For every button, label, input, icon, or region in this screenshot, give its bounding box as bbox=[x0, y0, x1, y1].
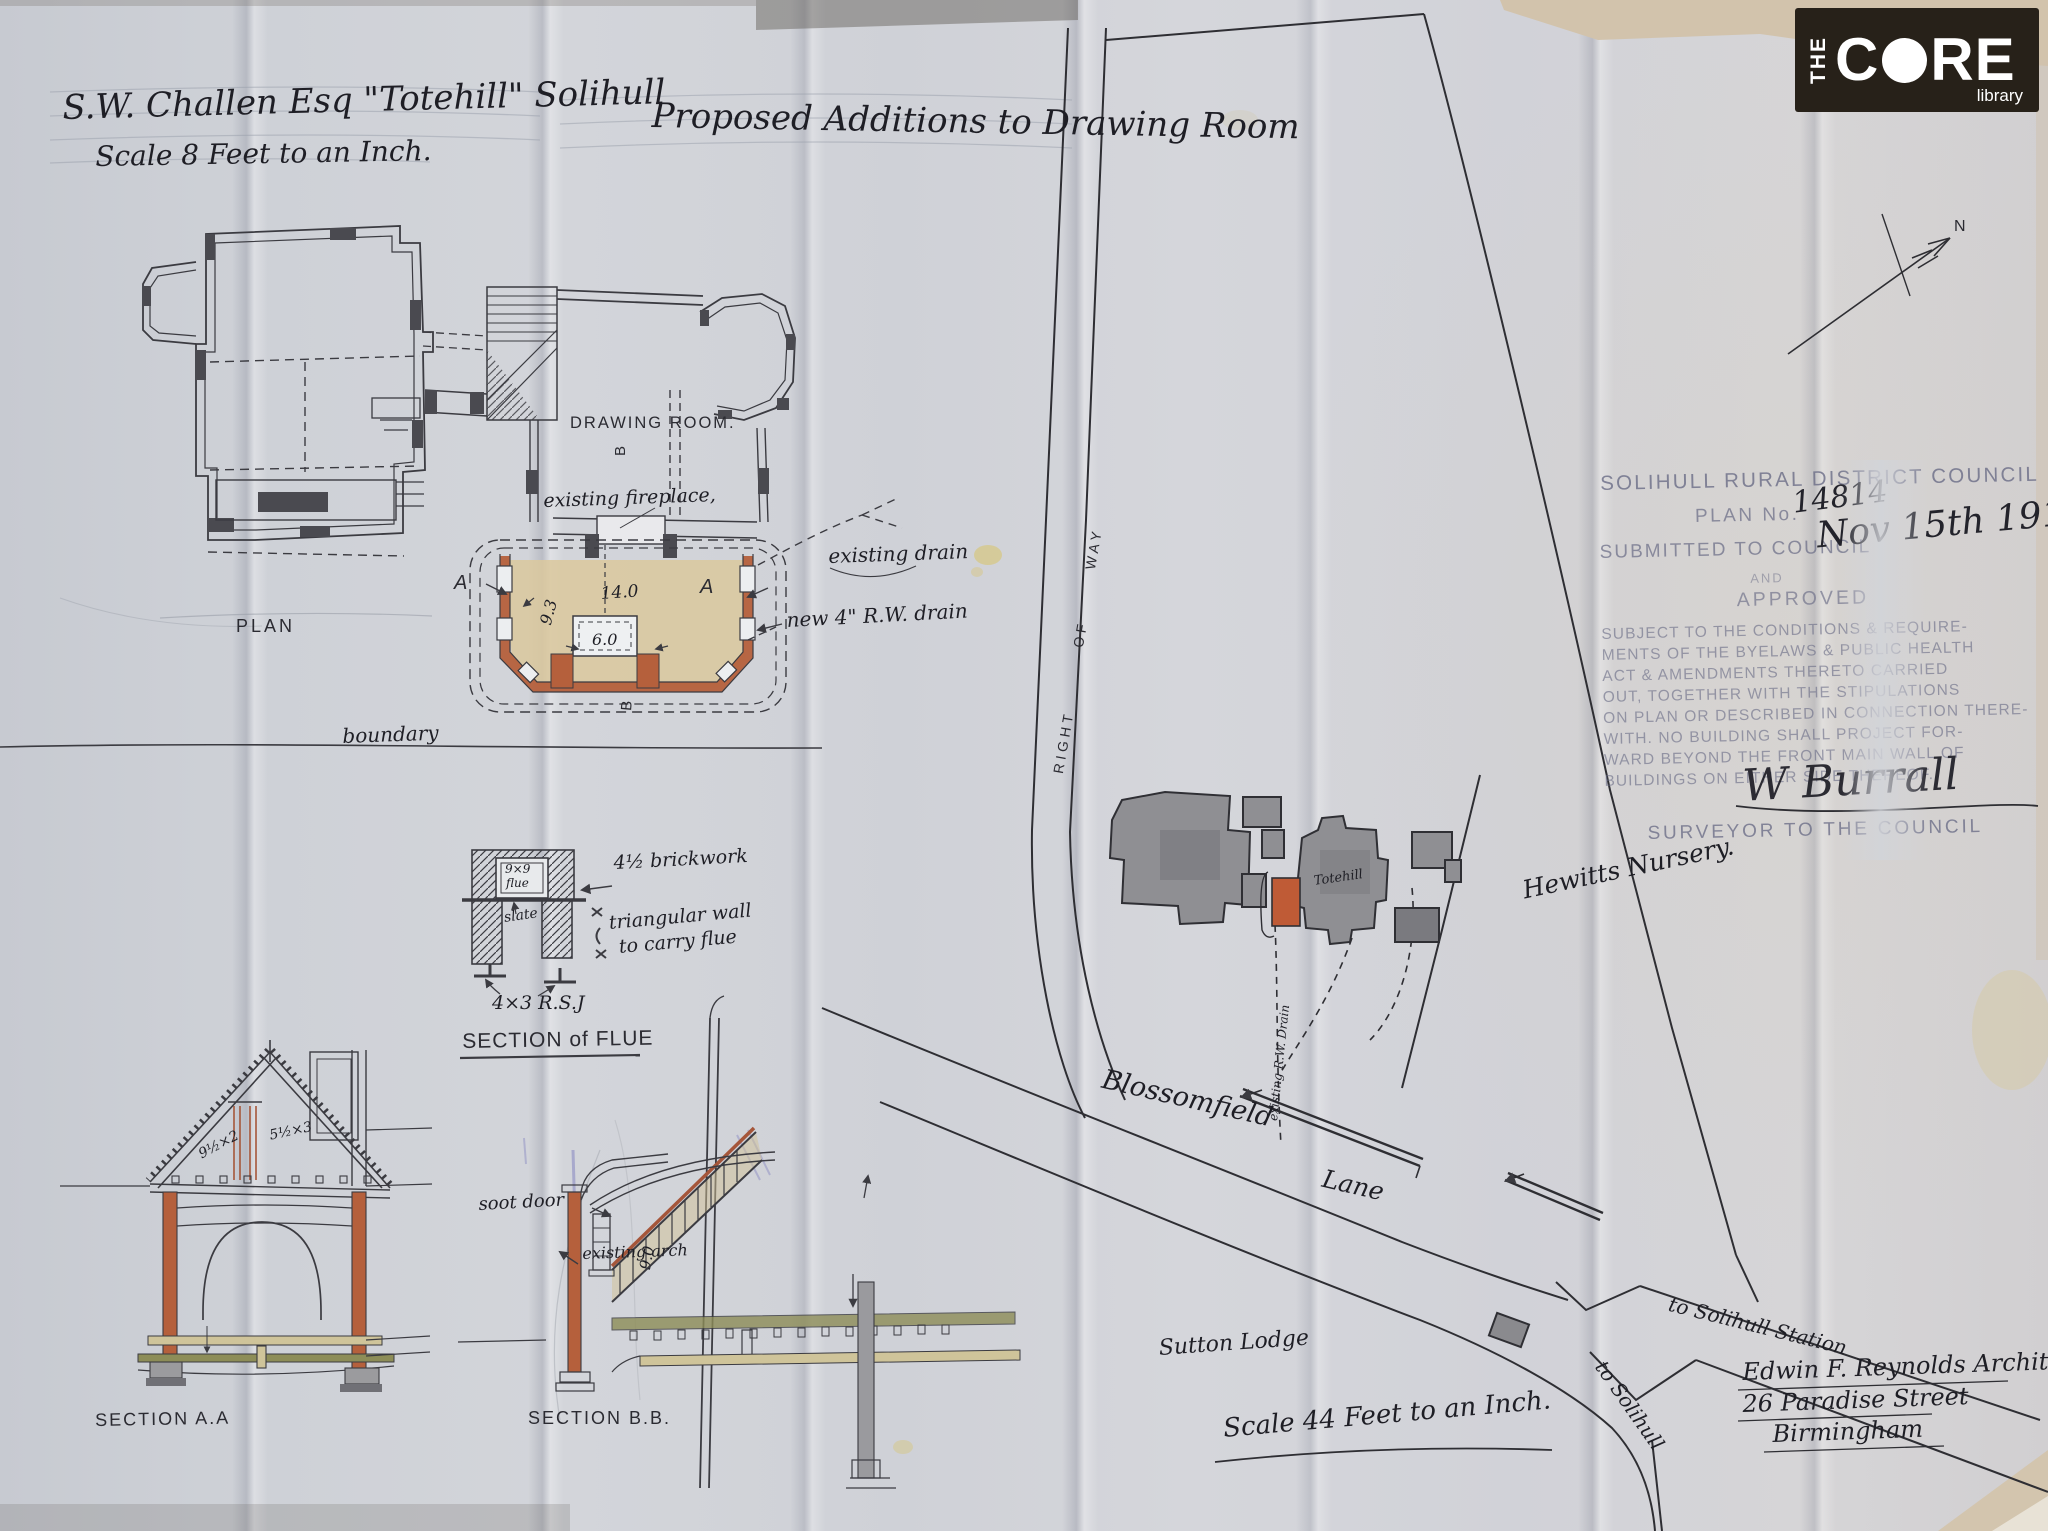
soot-door-note: soot door bbox=[478, 1190, 565, 1215]
rsj-note: 4×3 R.S.J bbox=[492, 992, 584, 1014]
logo-library-text: library bbox=[1977, 86, 2023, 106]
drawing-room-label: DRAWING ROOM. bbox=[570, 414, 736, 433]
drawing-scale-note: Scale 8 Feet to an Inch. bbox=[95, 134, 432, 173]
compass-north-label: N bbox=[1954, 218, 1966, 236]
stamp-and-label: AND bbox=[1750, 570, 1784, 586]
flue-size-line1: 9×9 bbox=[505, 862, 530, 876]
existing-house-plan bbox=[60, 226, 487, 626]
logo-core-re: RE bbox=[1930, 30, 2015, 90]
stamp-surveyor-label: SURVEYOR TO THE COUNCIL bbox=[1647, 816, 1983, 845]
the-core-library-logo: THE CRE library bbox=[1795, 8, 2039, 112]
existing-arch-note: existing arch bbox=[582, 1240, 688, 1263]
stamp-approved-label: APPROVED bbox=[1736, 586, 1869, 612]
section-aa-title: SECTION A.A bbox=[95, 1408, 230, 1431]
scanned-plan-document: S.W. Challen Esq "Totehill" Solihull Pro… bbox=[0, 0, 2048, 1531]
dim-hearth: 6.0 bbox=[592, 630, 617, 649]
logo-core-c: C bbox=[1835, 30, 1879, 90]
logo-core-text: CRE bbox=[1835, 30, 2016, 90]
section-b-marker-top: B bbox=[612, 446, 629, 456]
section-a-marker-left: A bbox=[454, 572, 467, 595]
section-bb-title: SECTION B.B. bbox=[528, 1408, 671, 1429]
dim-width: 14.0 bbox=[600, 581, 639, 604]
flue-section-title: SECTION of FLUE bbox=[462, 1027, 654, 1054]
boundary-label: boundary bbox=[342, 721, 439, 748]
existing-drain-note: existing drain bbox=[828, 539, 969, 568]
architect-city: Birmingham bbox=[1772, 1415, 1923, 1448]
section-a-marker-right: A bbox=[700, 576, 713, 599]
plan-label: PLAN bbox=[236, 616, 295, 637]
logo-the-text: THE bbox=[1807, 25, 1831, 95]
surveyor-signature: W Burrall bbox=[1741, 749, 1960, 812]
logo-o-disc-icon bbox=[1882, 38, 1927, 83]
stamp-plan-no-label: PLAN No. bbox=[1695, 504, 1800, 528]
council-approval-stamp: SOLIHULL RURAL DISTRICT COUNCIL PLAN No.… bbox=[1598, 463, 2048, 864]
section-aa-drawing bbox=[60, 1040, 432, 1392]
section-b-marker-bottom: B bbox=[618, 700, 636, 711]
new-addition-plan bbox=[0, 498, 916, 748]
flue-size-line2: flue bbox=[506, 876, 529, 890]
